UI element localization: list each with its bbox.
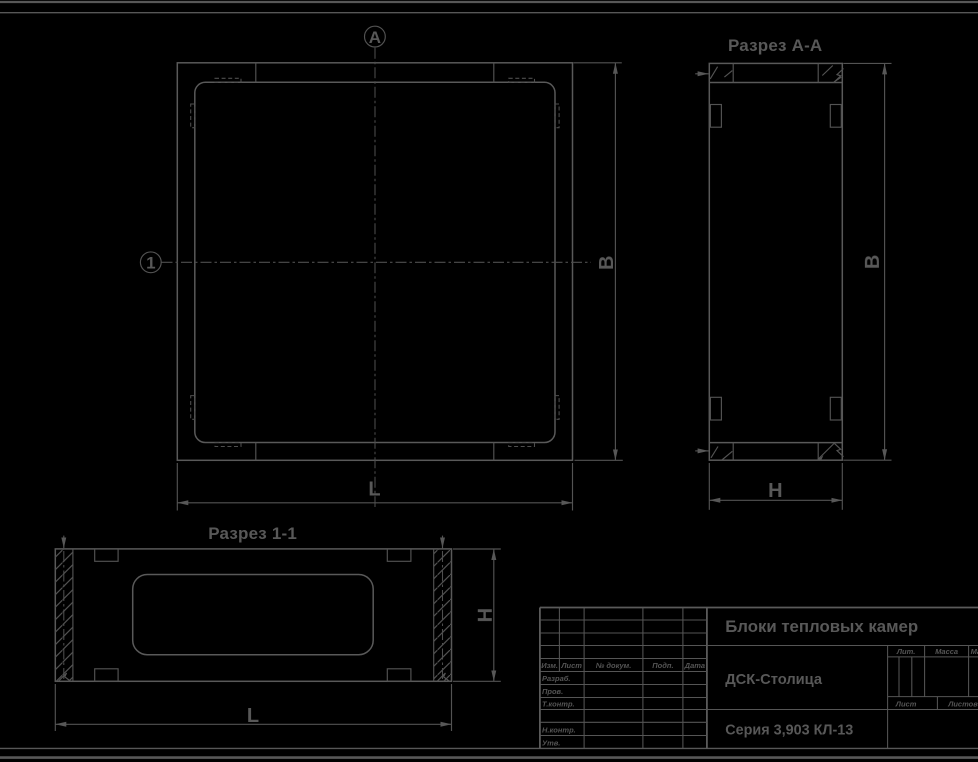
svg-text:Пров.: Пров. [542,687,563,696]
svg-text:L: L [247,705,259,727]
svg-text:Разраб.: Разраб. [542,674,570,683]
svg-text:Масса: Масса [935,647,958,656]
svg-text:Утв.: Утв. [542,738,560,747]
svg-text:B: B [596,255,618,269]
svg-text:Т.контр.: Т.контр. [542,699,575,708]
svg-text:Серия 3,903 КЛ-13: Серия 3,903 КЛ-13 [725,723,853,739]
svg-text:Разрез 1-1: Разрез 1-1 [208,524,297,543]
svg-text:Листов: Листов [947,700,978,709]
svg-text:Н.контр.: Н.контр. [542,725,576,734]
svg-text:1: 1 [146,254,155,273]
svg-text:Дата: Дата [684,661,705,670]
svg-text:№ докум.: № докум. [596,661,632,670]
svg-text:B: B [862,255,884,269]
svg-text:Блоки тепловых камер: Блоки тепловых камер [725,617,918,636]
svg-text:Лист: Лист [895,700,917,709]
svg-text:Масштаб: Масштаб [971,647,978,656]
svg-text:Подп.: Подп. [652,661,673,670]
svg-text:А: А [369,28,381,47]
svg-text:ДСК-Столица: ДСК-Столица [725,672,823,688]
svg-text:Лит.: Лит. [896,647,915,656]
svg-text:H: H [768,480,782,502]
svg-text:H: H [475,608,497,622]
svg-text:Разрез А-А: Разрез А-А [728,36,822,55]
svg-text:L: L [368,479,380,501]
svg-text:Изм.: Изм. [541,661,558,670]
svg-text:Лист: Лист [560,661,582,670]
